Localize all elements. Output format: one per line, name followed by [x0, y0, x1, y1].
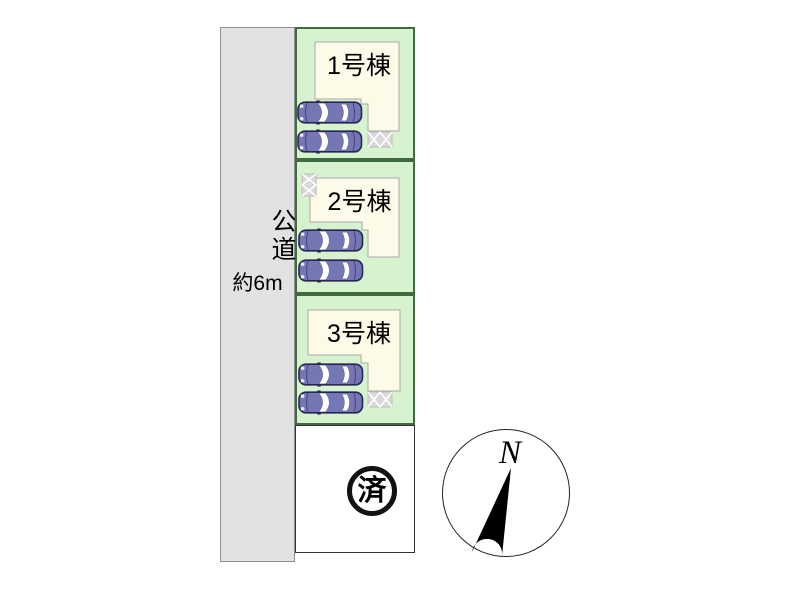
building-2-label: 2号棟 — [318, 189, 401, 217]
building-1-label: 1号棟 — [317, 53, 401, 81]
compass: N — [441, 427, 573, 559]
site-plan-diagram: 公道 約6m 1号棟 2号棟 3号棟 — [0, 0, 800, 600]
compass-needle-icon — [472, 468, 511, 556]
plot-sold: 済 — [295, 425, 415, 553]
road-name-label: 公道 — [221, 208, 294, 264]
public-road: 公道 約6m — [220, 27, 295, 562]
car-icon — [298, 100, 362, 124]
plot-3: 3号棟 — [295, 294, 415, 425]
north-label: N — [498, 435, 523, 471]
car-icon — [299, 390, 363, 414]
sold-stamp-icon: 済 — [347, 466, 397, 516]
building-3-label: 3号棟 — [313, 321, 405, 349]
plot-2: 2号棟 — [295, 160, 415, 294]
car-icon — [298, 129, 362, 153]
road-width-label: 約6m — [221, 267, 294, 297]
sold-stamp-label: 済 — [357, 477, 386, 506]
veranda-hatch-icon — [368, 132, 392, 147]
plot-1: 1号棟 — [295, 27, 415, 160]
car-icon — [299, 258, 363, 282]
veranda-hatch-icon — [302, 174, 316, 196]
veranda-hatch-icon — [368, 392, 392, 407]
car-icon — [299, 228, 363, 252]
car-icon — [299, 362, 363, 386]
